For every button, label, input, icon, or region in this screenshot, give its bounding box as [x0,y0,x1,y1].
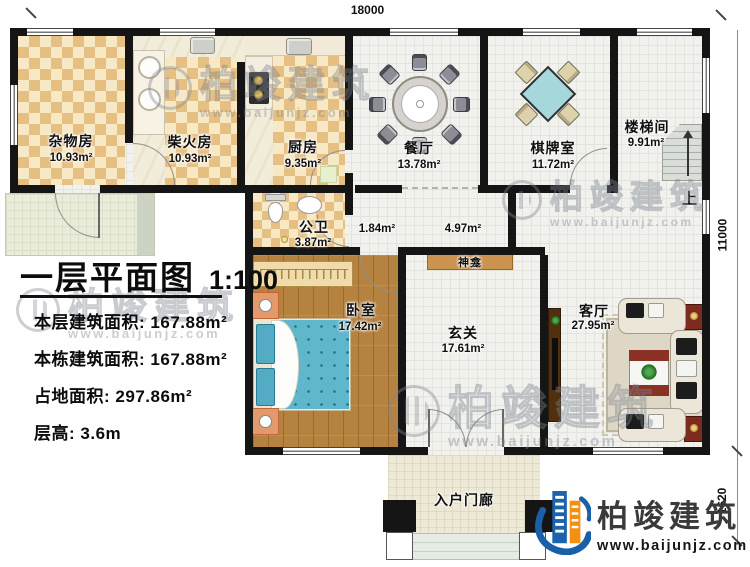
sink-icon [190,37,215,54]
room-area-firewood: 10.93m² [169,153,212,165]
room-label-bathroom: 公卫 [299,217,329,237]
coffee-table-band [629,385,669,396]
info-value: 3.6m [80,424,121,443]
sofa-cushion [648,303,664,318]
room-label-storage: 杂物房 [49,131,94,151]
wall [245,185,345,193]
room-label-dining: 餐厅 [404,138,434,158]
plant-icon [551,316,560,325]
brand-logo [533,487,591,555]
room-label-living: 客厅 [579,301,609,321]
floor-drain-icon [281,236,288,243]
porch-label: 入户门廊 [434,490,494,510]
threshold-line [402,187,478,189]
wall [125,36,133,143]
wall [345,36,353,150]
floor-height-line: 层高: 3.6m [34,419,121,444]
dining-chair [369,97,386,112]
dining-chair [412,54,427,71]
wall [508,192,516,247]
room-area-stairwell: 9.91m² [628,137,664,149]
room-label-bedroom: 卧室 [346,300,376,320]
building-area-line: 本栋建筑面积: 167.88m² [34,345,227,370]
plant-icon [641,364,657,380]
stairs-arrow-icon [683,130,693,138]
bed-pillow [256,324,275,364]
burner [254,76,263,85]
stairs-direction-line [687,136,689,176]
dining-chair [453,97,470,112]
title-underline [20,295,222,298]
door-leaf [502,409,504,447]
room-area-living: 27.95m² [572,320,615,332]
info-value: 167.88m² [150,350,227,369]
room-area-bathroom: 3.87m² [295,237,331,249]
info-label: 本栋建筑面积: [34,350,145,369]
info-label: 本层建筑面积: [34,313,145,332]
info-label: 占地面积: [34,387,110,406]
title-block: 一层平面图 1:100 [20,261,278,294]
room-area-dining: 13.78m² [398,159,441,171]
porch-column-base [386,532,413,560]
dimension-top: 18000 [340,3,395,17]
dining-table-center [416,100,424,108]
sofa-cushion [676,338,697,355]
tv-icon [552,338,558,390]
washbasin-icon [297,196,322,214]
floor-area-line: 本层建筑面积: 167.88m² [34,308,227,333]
window [523,28,580,36]
sofa-cushion [626,414,644,429]
door-leaf [428,409,430,447]
wall [355,185,402,193]
plan-scale: 1:100 [209,267,278,294]
porch-steps [410,533,522,560]
window [283,447,360,455]
room-label-chess: 棋牌室 [531,138,576,158]
window [637,28,692,36]
window [702,58,710,113]
toilet-tank [265,194,286,201]
dimension-right: 11000 [716,213,730,258]
nightstand-lamp [259,299,272,312]
room-area-chess: 11.72m² [532,159,574,171]
wall [10,185,55,193]
corridor-area-label: 4.97m² [445,223,481,235]
wall [10,28,710,36]
brand-logo-icon [533,487,591,555]
shrine-label: 神龛 [458,254,482,270]
patio-edge-strip [137,194,154,255]
bed-pillow [256,368,275,406]
info-value: 297.86m² [115,387,192,406]
window [390,28,458,36]
stairs-up-label: 上 [682,188,698,209]
stove-pot [138,88,161,111]
room-label-foyer: 玄关 [448,323,478,343]
wall [478,185,570,193]
wall [345,173,353,193]
wall [610,36,618,192]
nightstand-lamp [259,415,272,428]
info-value: 167.88m² [150,313,227,332]
stove-pot [138,56,161,79]
wall [480,36,488,185]
wall [345,193,353,215]
wall [100,185,245,193]
floor-plan-canvas: 杂物房 10.93m² 柴火房 10.93m² 厨房 9.35m² 餐厅 13.… [0,0,750,567]
page-title: 一层平面图 [20,261,195,294]
wall [245,193,253,455]
room-label-firewood: 柴火房 [168,132,213,152]
room-label-stairwell: 楼梯间 [625,117,670,137]
sofa-cushion [676,360,697,377]
sofa-cushion [676,382,697,399]
wall [237,62,245,185]
window [593,447,663,455]
corridor-area-label: 1.84m² [359,223,395,235]
room-label-kitchen: 厨房 [288,137,318,157]
land-area-line: 占地面积: 297.86m² [34,382,192,407]
door-leaf [98,193,100,238]
side-table-medallion [690,424,698,432]
room-area-storage: 10.93m² [50,152,93,164]
window [160,28,215,36]
brand-name: 柏竣建筑 [597,501,741,532]
window [10,85,18,145]
window [702,200,710,234]
side-table-medallion [690,312,698,320]
wall [540,255,548,455]
info-label: 层高: [34,424,75,443]
sofa-cushion [648,414,664,429]
room-area-bedroom: 17.42m² [339,321,382,333]
sofa-cushion [626,303,644,318]
brand-website: www.baijunjz.com [597,538,748,554]
coffee-table-band [629,350,669,361]
room-area-foyer: 17.61m² [442,343,485,355]
burner [254,90,263,99]
sink-icon [286,38,312,55]
room-area-kitchen: 9.35m² [285,158,321,170]
wall [398,247,406,455]
firewood-room-rug [165,57,237,185]
porch-pillar [383,500,416,532]
dimension-line [737,30,738,455]
window [27,28,73,36]
